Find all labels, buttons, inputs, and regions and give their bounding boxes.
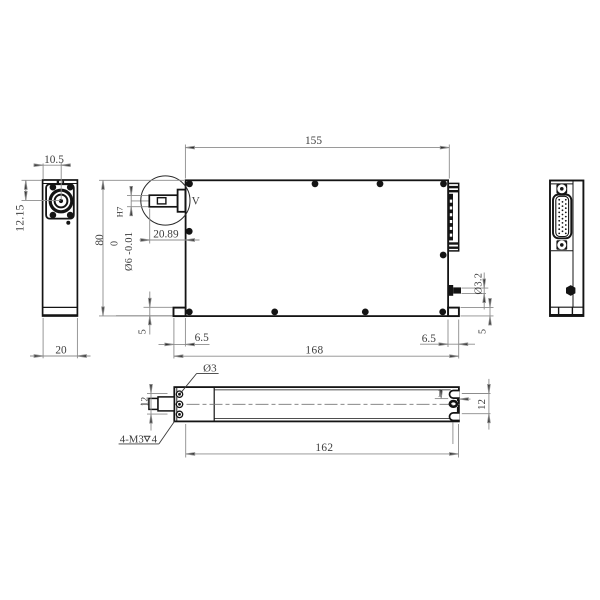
svg-text:4-M3: 4-M3: [120, 433, 144, 445]
svg-text:4: 4: [152, 433, 158, 445]
svg-text:162: 162: [315, 442, 333, 454]
svg-text:H7: H7: [115, 206, 125, 217]
svg-text:20: 20: [55, 345, 67, 357]
svg-text:6.5: 6.5: [195, 332, 209, 344]
svg-text:1: 1: [437, 388, 442, 399]
svg-text:Ø3.2: Ø3.2: [474, 273, 485, 295]
svg-text:Ø3: Ø3: [203, 363, 217, 375]
svg-text:5: 5: [137, 329, 148, 334]
svg-text:V: V: [192, 196, 201, 208]
svg-text:20.89: 20.89: [153, 228, 179, 240]
svg-text:12: 12: [476, 399, 488, 410]
svg-text:10.5: 10.5: [44, 154, 64, 166]
svg-text:80: 80: [94, 234, 106, 246]
svg-text:168: 168: [305, 345, 323, 357]
svg-text:155: 155: [305, 135, 322, 147]
svg-text:12.15: 12.15: [14, 204, 26, 231]
svg-text:5: 5: [478, 329, 489, 334]
svg-text:6.5: 6.5: [422, 333, 436, 345]
svg-text:12: 12: [140, 397, 150, 407]
svg-text:Ø6 -0.01: Ø6 -0.01: [124, 232, 135, 271]
svg-text:0: 0: [110, 241, 121, 246]
